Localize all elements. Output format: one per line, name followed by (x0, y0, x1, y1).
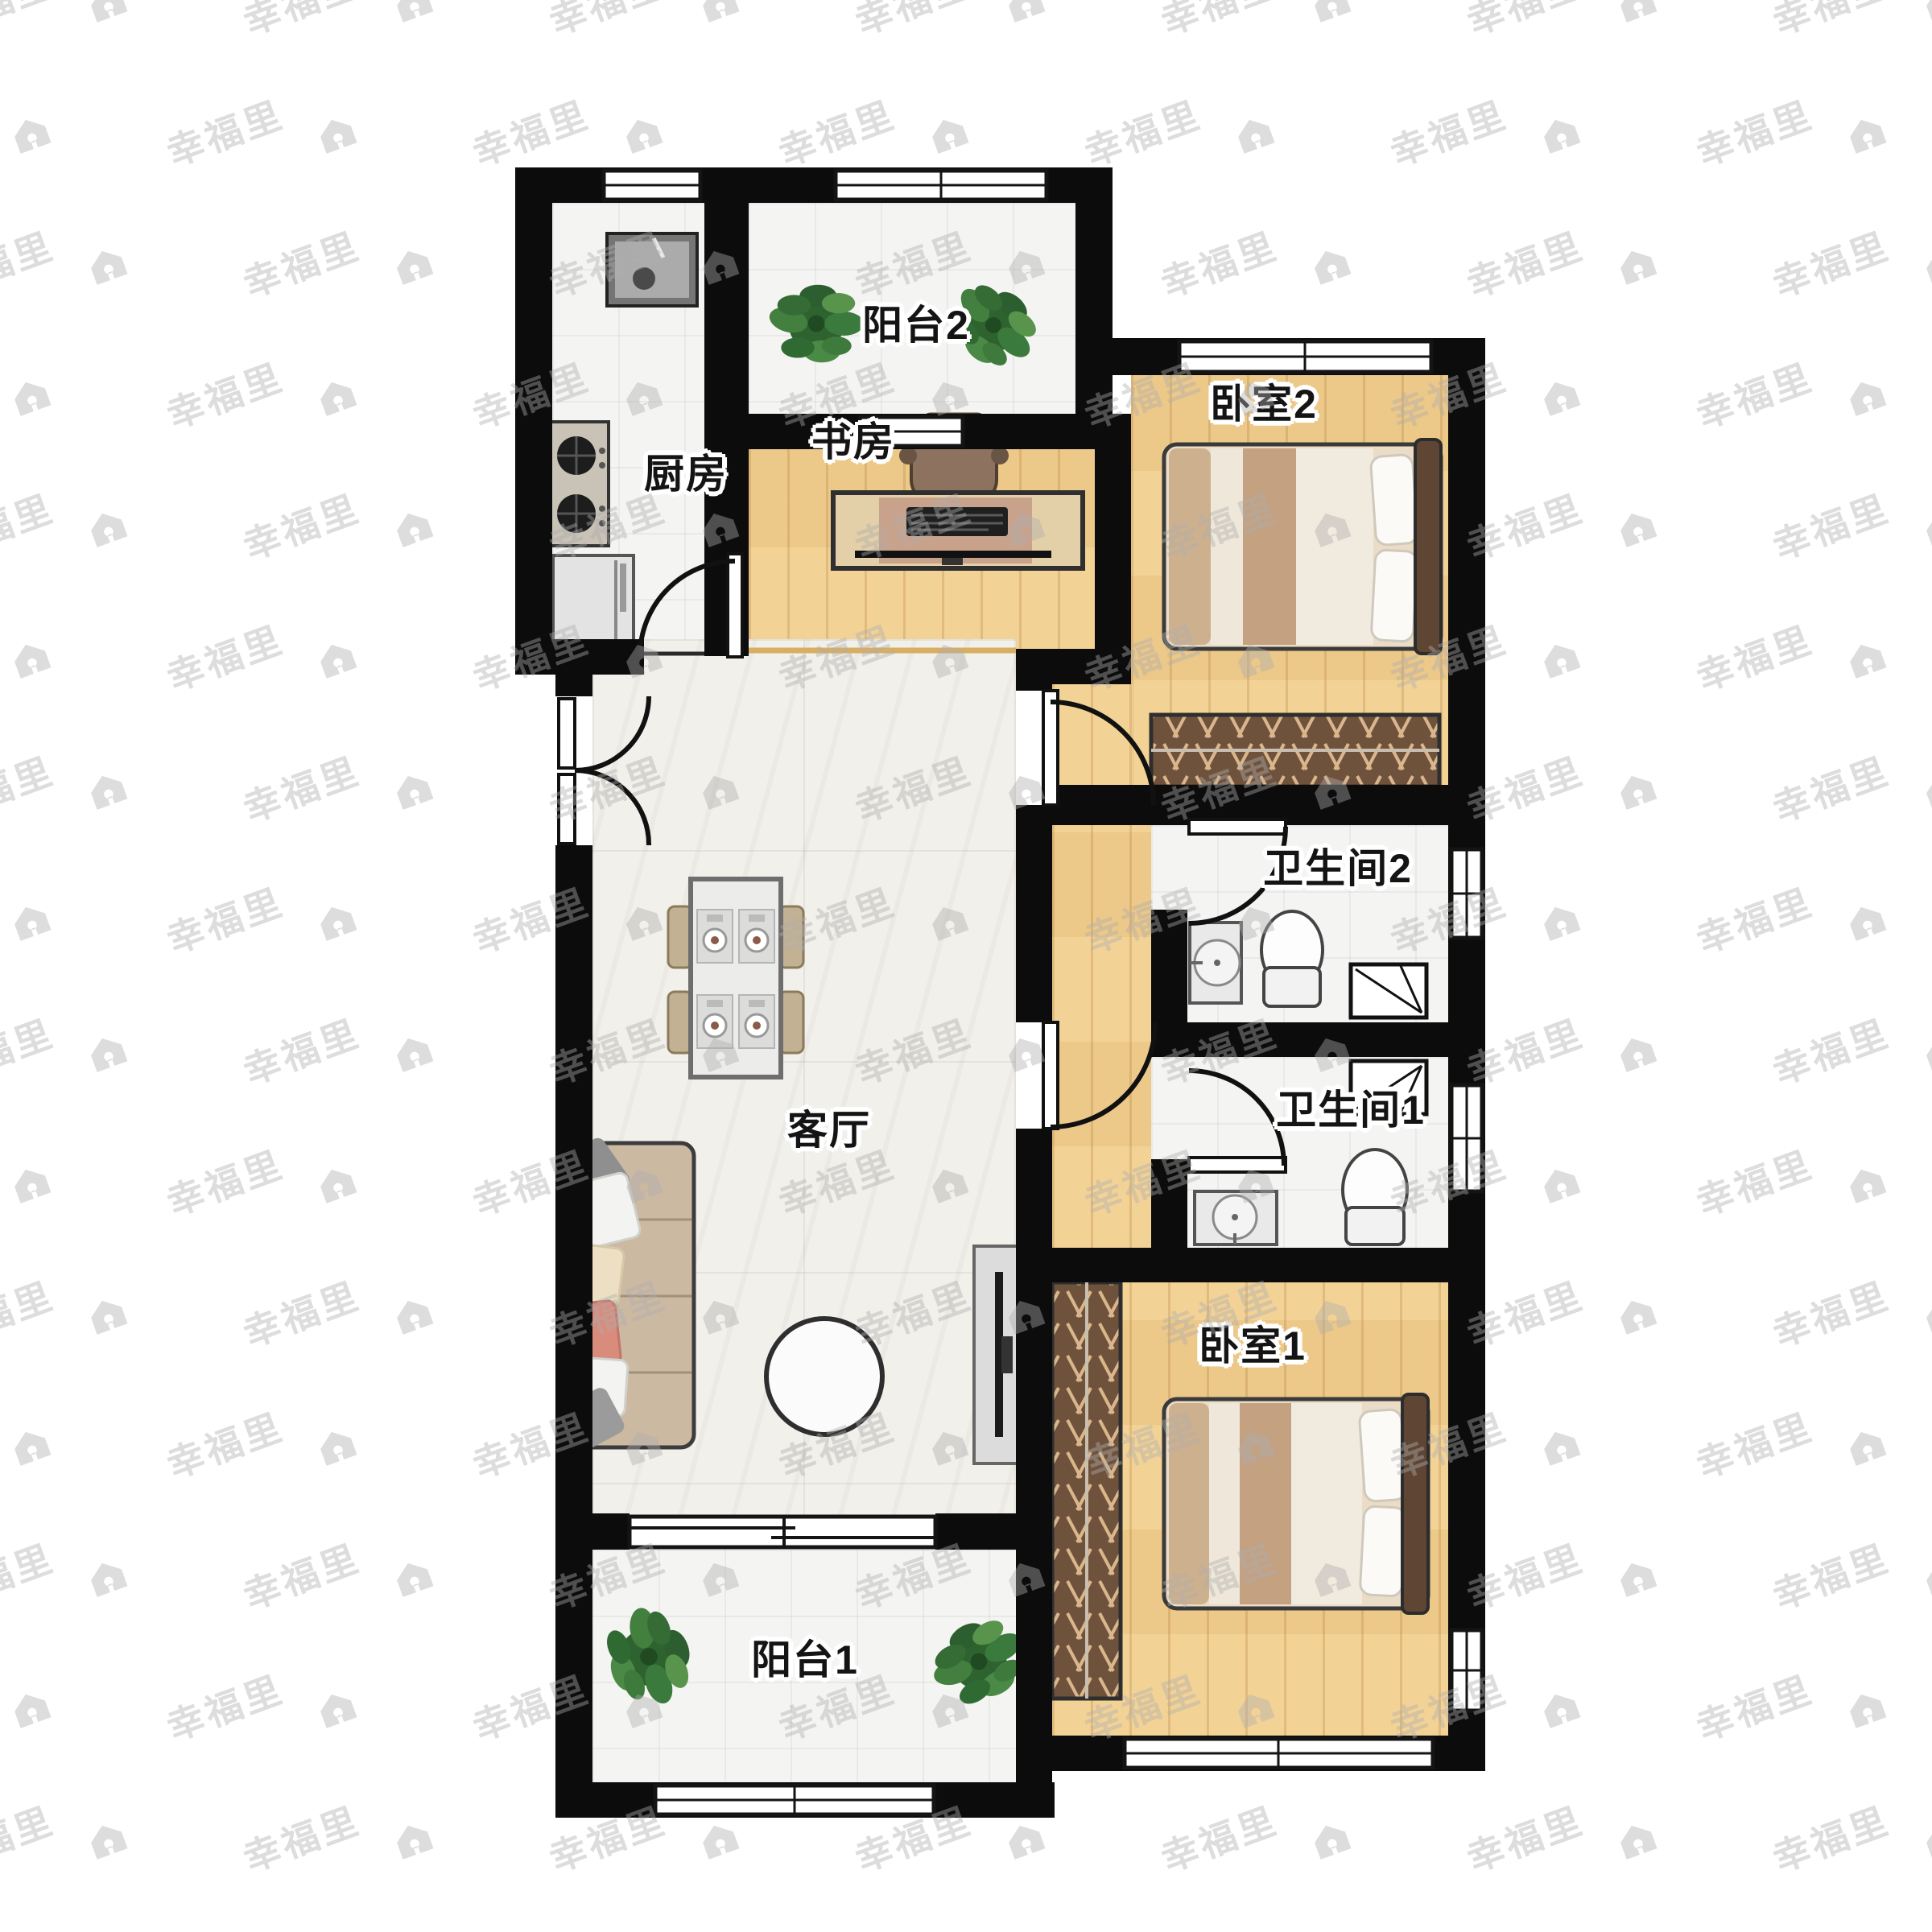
place-setting (697, 995, 733, 1048)
plant-balcony1-left (593, 1594, 704, 1716)
bathroom2-window (1451, 849, 1482, 938)
gas-stove (549, 422, 609, 546)
thresholds (644, 650, 1016, 654)
floor-plan-canvas: 厨房 阳台2 书房 卧室2 客厅 卫生间2 卫生间1 卧室1 阳台1 幸福里幸福… (0, 0, 1932, 1932)
hallway-door (1043, 1022, 1155, 1129)
label-kitchen: 厨房 (644, 442, 728, 500)
balcony2-window (836, 171, 1046, 200)
bedroom2-wardrobe (1151, 715, 1439, 786)
label-bedroom-2: 卧室2 (1210, 372, 1318, 430)
label-balcony-1: 阳台1 (751, 1628, 859, 1686)
bathroom1-door (1189, 1071, 1286, 1172)
washbasin-1 (1195, 1191, 1277, 1245)
balcony1-sliding-door (630, 1517, 935, 1547)
toilet-2 (1261, 911, 1323, 1006)
dining-table-set (668, 879, 803, 1077)
bedroom1-wardrobe (1052, 1282, 1121, 1699)
place-setting (697, 910, 733, 963)
washbasin-2 (1190, 923, 1241, 1003)
bedroom1-side-window (1451, 1630, 1482, 1711)
place-setting (739, 910, 774, 963)
kitchen-window (604, 171, 700, 200)
label-bathroom-1: 卫生间1 (1276, 1078, 1426, 1136)
label-bathroom-2: 卫生间2 (1263, 836, 1413, 894)
kitchen-sink (607, 233, 697, 306)
place-setting (739, 995, 774, 1048)
toilet-1 (1343, 1150, 1407, 1245)
bedroom2-bed (1164, 440, 1441, 654)
bedroom2-window (1179, 341, 1431, 372)
coffee-table (766, 1319, 882, 1435)
bedroom1-window (1125, 1739, 1433, 1768)
bedroom1-bed (1164, 1394, 1428, 1613)
label-bedroom-1: 卧室1 (1199, 1314, 1307, 1372)
label-living-room: 客厅 (787, 1098, 871, 1156)
entry-double-door (557, 696, 649, 845)
vent-shaft-2 (1351, 964, 1426, 1018)
kitchen-door (640, 554, 742, 657)
plan-graphics (0, 0, 1932, 1932)
label-study: 书房 (811, 410, 895, 468)
tv-cabinet (974, 1246, 1018, 1463)
balcony1-window (655, 1785, 934, 1814)
label-balcony-2: 阳台2 (862, 293, 970, 351)
bathroom1-window (1451, 1085, 1482, 1191)
plant-balcony2-left (766, 285, 863, 363)
